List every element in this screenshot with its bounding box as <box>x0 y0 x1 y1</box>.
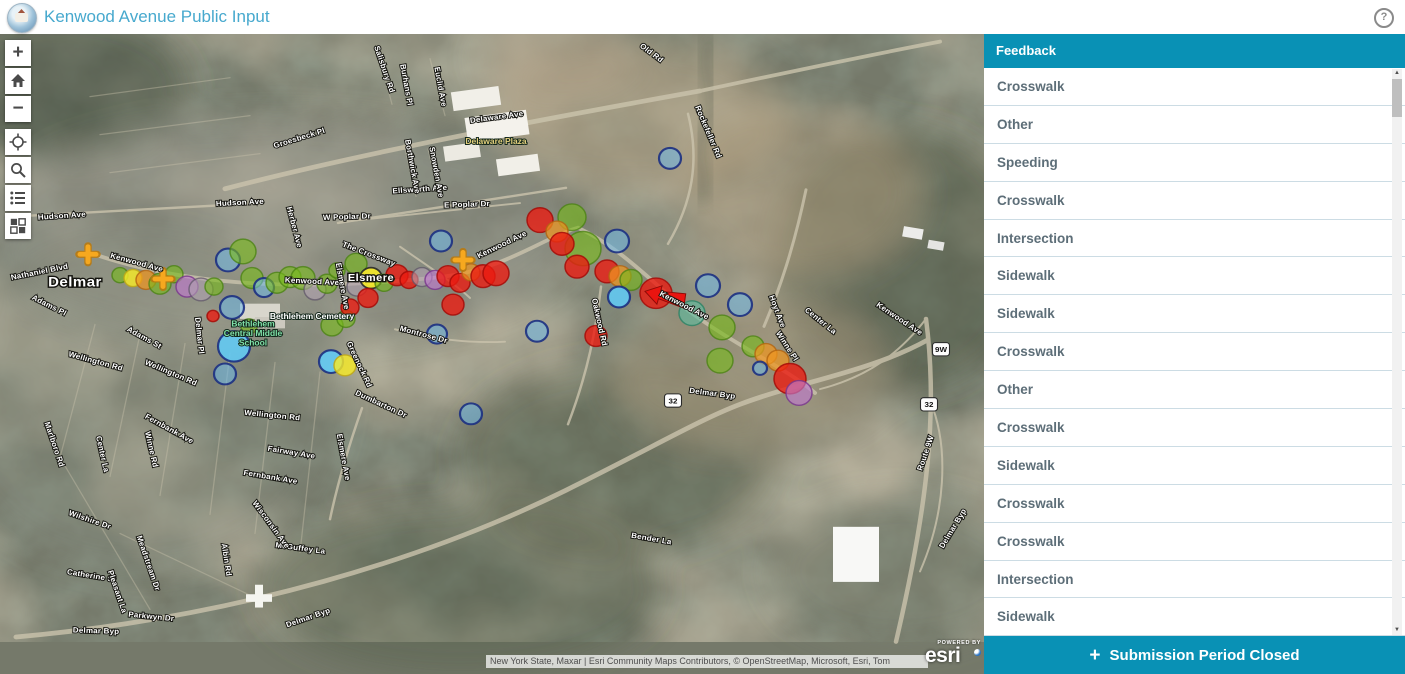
list-item[interactable]: Crosswalk <box>984 523 1405 561</box>
map-svg: 32329W Hudson AveHudson AveNathaniel Blv… <box>0 34 984 674</box>
map-attribution: New York State, Maxar | Esri Community M… <box>486 655 928 668</box>
feedback-marker[interactable] <box>483 261 509 286</box>
locate-button[interactable] <box>5 129 31 155</box>
list-item[interactable]: Crosswalk <box>984 182 1405 220</box>
submission-button[interactable]: + Submission Period Closed <box>984 636 1405 674</box>
basemap-icon <box>10 218 26 234</box>
town-label: Elsmere <box>348 272 394 284</box>
poi-label: Delaware Plaza <box>465 137 527 146</box>
submission-label: Submission Period Closed <box>1110 647 1300 664</box>
app-header: Kenwood Avenue Public Input ? <box>0 0 1405 34</box>
feedback-marker[interactable] <box>696 274 720 297</box>
feedback-marker[interactable] <box>605 230 629 253</box>
route-shield-label: 32 <box>925 400 935 409</box>
list-item[interactable]: Sidewalk <box>984 598 1405 636</box>
home-icon <box>10 73 26 89</box>
esri-globe-icon <box>974 649 981 656</box>
feedback-marker[interactable] <box>460 403 482 424</box>
legend-button[interactable] <box>5 185 31 211</box>
feedback-marker[interactable] <box>207 310 219 321</box>
locate-icon <box>9 133 27 151</box>
feedback-marker[interactable] <box>753 362 767 375</box>
feedback-marker[interactable] <box>550 232 574 255</box>
app-window: 32329W Hudson AveHudson AveNathaniel Blv… <box>0 0 1405 674</box>
help-button[interactable]: ? <box>1374 8 1394 28</box>
feedback-marker[interactable] <box>709 315 735 340</box>
feedback-marker[interactable] <box>214 363 236 384</box>
road-label: W Poplar Dr <box>323 212 371 222</box>
map-canvas[interactable]: 32329W Hudson AveHudson AveNathaniel Blv… <box>0 34 984 674</box>
esri-wordmark: esri <box>925 646 981 666</box>
feedback-marker[interactable] <box>442 294 464 315</box>
feedback-marker[interactable] <box>526 321 548 342</box>
scroll-up-arrow-icon[interactable]: ▲ <box>1392 69 1402 78</box>
list-item[interactable]: Sidewalk <box>984 295 1405 333</box>
poi-label: Central Middle <box>224 329 283 338</box>
list-item[interactable]: Crosswalk <box>984 68 1405 106</box>
feedback-marker[interactable] <box>728 293 752 316</box>
feedback-panel: Feedback Crosswalk Other Speeding Crossw… <box>984 34 1405 674</box>
feedback-marker[interactable] <box>230 239 256 264</box>
poi-label: School <box>239 339 267 348</box>
list-item[interactable]: Other <box>984 371 1405 409</box>
route-shield-label: 32 <box>669 397 679 406</box>
road-label: E Poplar Dr <box>444 199 490 209</box>
list-item[interactable]: Crosswalk <box>984 333 1405 371</box>
road-label: Delmar Byp <box>73 626 120 636</box>
basemap-button[interactable] <box>5 213 31 239</box>
feedback-marker[interactable] <box>565 255 589 278</box>
page-title: Kenwood Avenue Public Input <box>44 0 270 34</box>
esri-logo: POWERED BY esri <box>925 640 981 672</box>
poi-label: Bethlehem Cemetery <box>270 312 355 321</box>
list-item[interactable]: Speeding <box>984 144 1405 182</box>
feedback-marker[interactable] <box>358 288 378 307</box>
question-mark-icon: ? <box>1381 11 1388 23</box>
poi-label: Bethlehem <box>231 320 274 329</box>
scrollbar[interactable]: ▲ ▼ <box>1392 69 1402 635</box>
scrollbar-thumb[interactable] <box>1392 79 1402 117</box>
feedback-marker[interactable] <box>205 278 223 295</box>
list-item[interactable]: Sidewalk <box>984 447 1405 485</box>
list-icon <box>10 191 26 205</box>
feedback-marker[interactable] <box>659 148 681 169</box>
list-item[interactable]: Intersection <box>984 561 1405 599</box>
app-logo-icon <box>7 3 37 33</box>
feedback-marker[interactable] <box>430 231 452 252</box>
search-icon <box>10 162 26 178</box>
search-button[interactable] <box>5 157 31 183</box>
zoom-in-button[interactable]: + <box>5 40 31 66</box>
feedback-marker[interactable] <box>220 296 244 319</box>
list-item[interactable]: Sidewalk <box>984 257 1405 295</box>
plus-icon: + <box>1089 646 1100 665</box>
minus-icon: − <box>12 97 23 121</box>
town-label: Delmar <box>48 275 102 291</box>
panel-title: Feedback <box>984 34 1405 68</box>
zoom-out-button[interactable]: − <box>5 96 31 122</box>
home-button[interactable] <box>5 68 31 94</box>
list-item[interactable]: Crosswalk <box>984 409 1405 447</box>
scroll-down-arrow-icon[interactable]: ▼ <box>1392 626 1402 635</box>
list-item[interactable]: Other <box>984 106 1405 144</box>
feedback-marker[interactable] <box>786 381 812 406</box>
list-item[interactable]: Intersection <box>984 220 1405 258</box>
list-item[interactable]: Crosswalk <box>984 485 1405 523</box>
feedback-list: Crosswalk Other Speeding Crosswalk Inter… <box>984 68 1405 636</box>
route-shield-label: 9W <box>935 345 948 354</box>
plus-icon: + <box>12 41 23 65</box>
feedback-marker[interactable] <box>608 287 630 308</box>
feedback-marker[interactable] <box>707 348 733 373</box>
